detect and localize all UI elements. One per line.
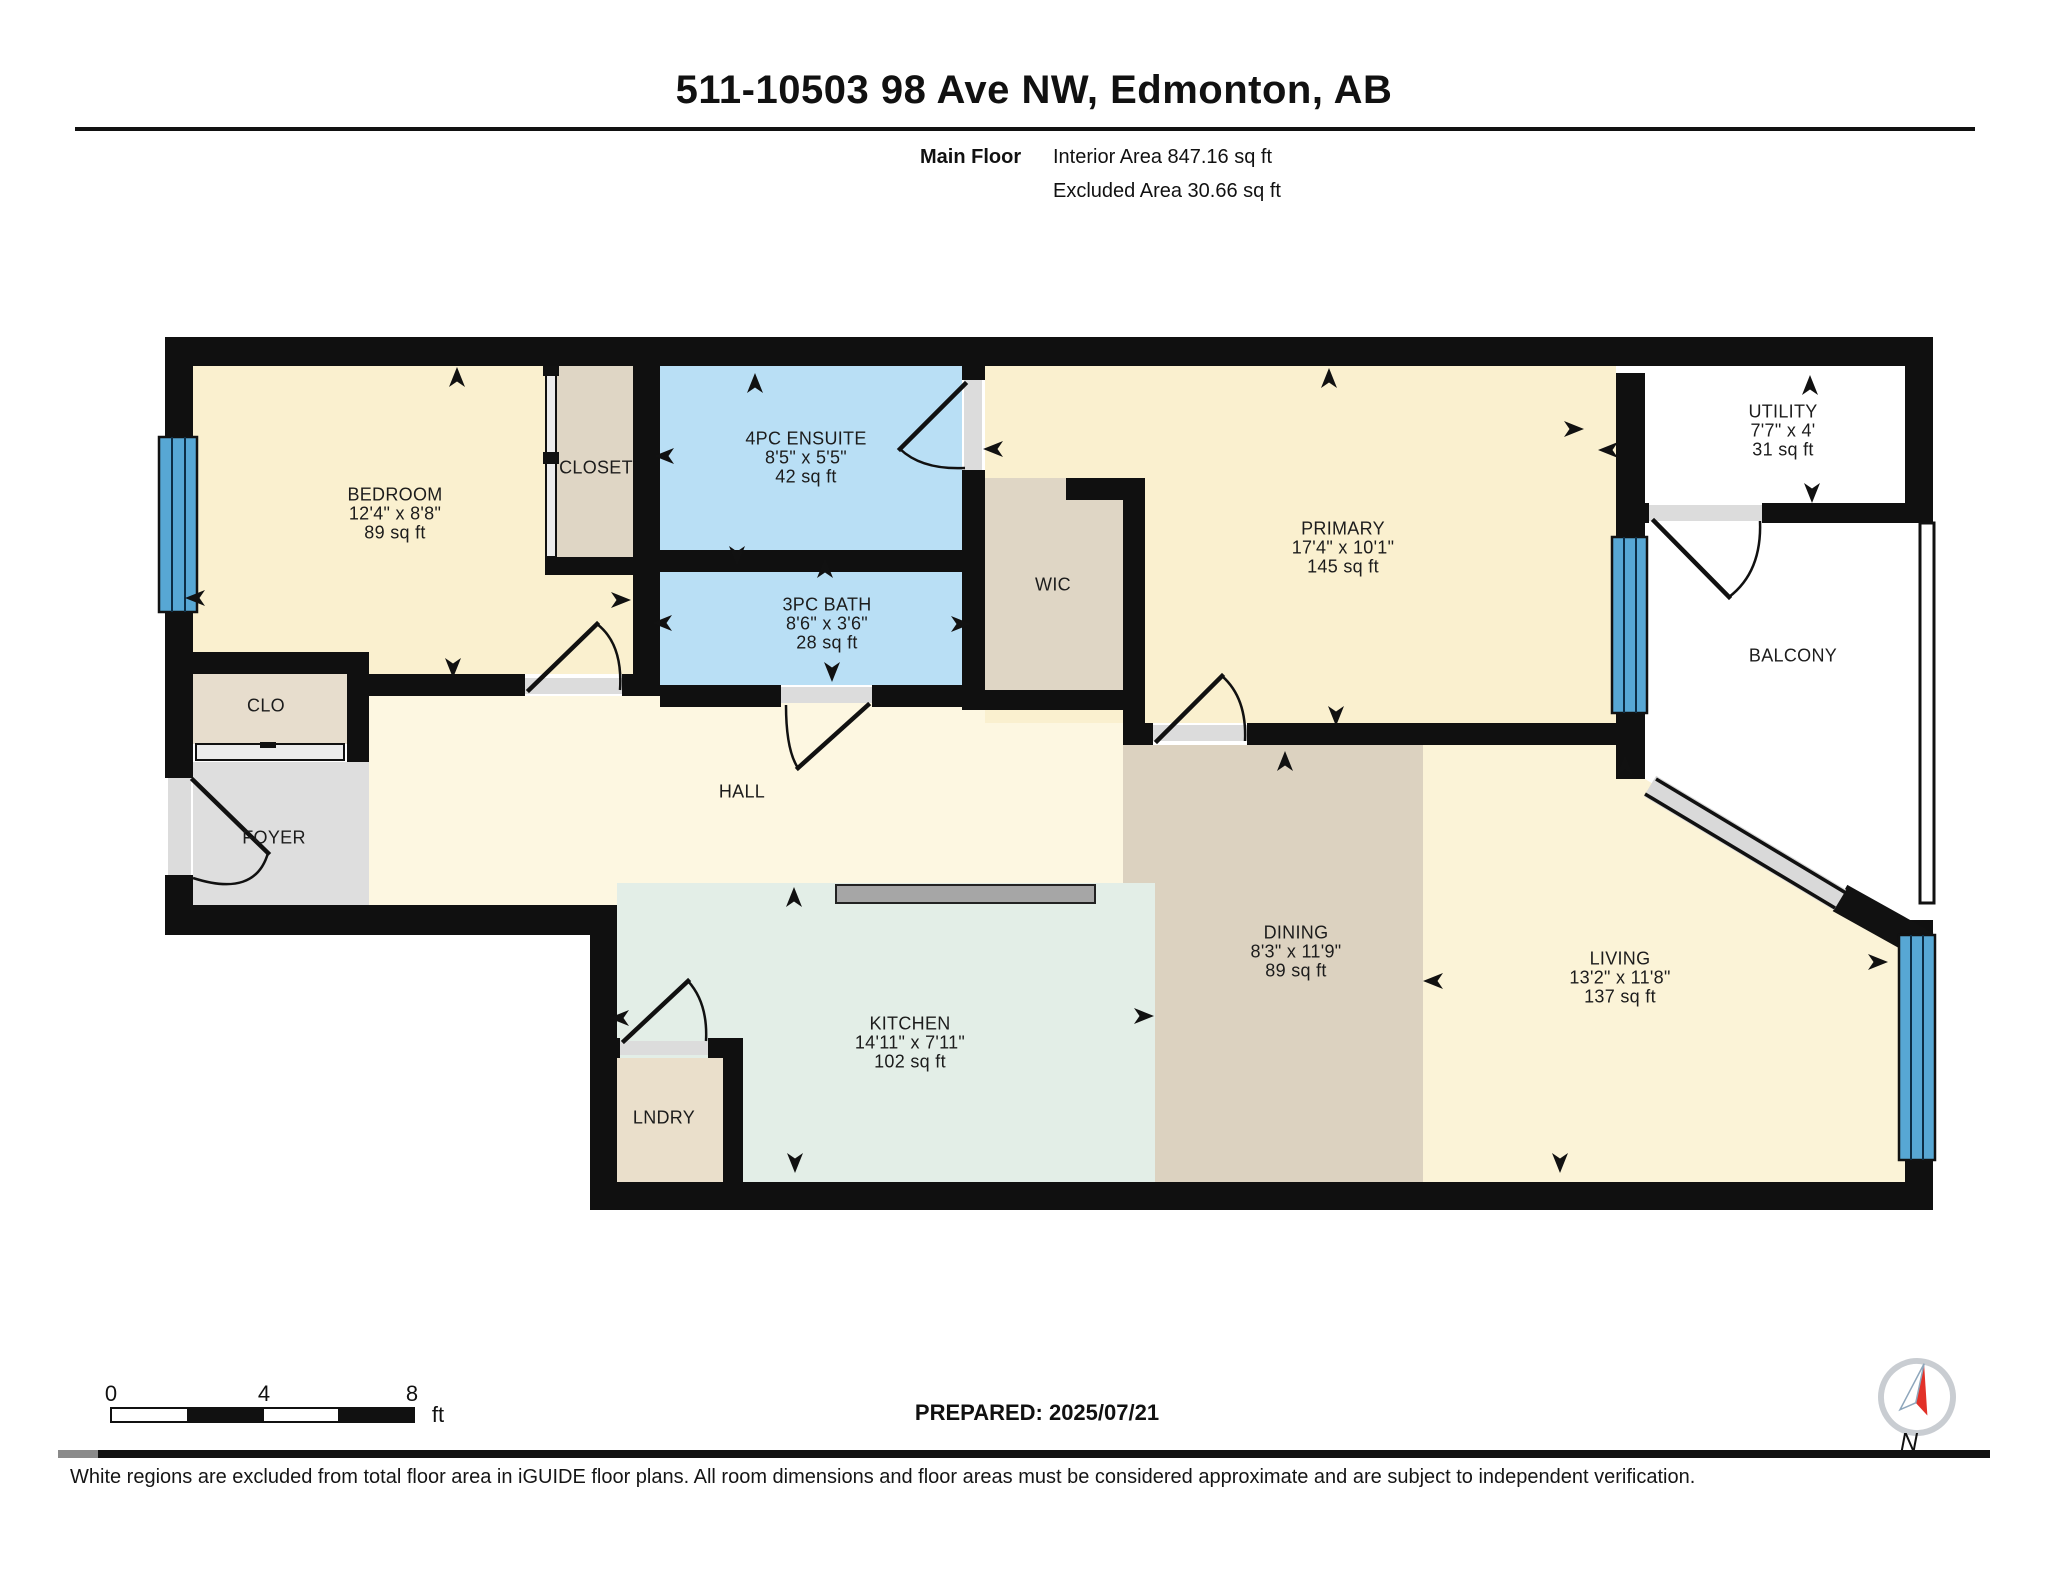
room-label-living: LIVING13'2" x 11'8"137 sq ft [1569,950,1670,1007]
scale-unit: ft [432,1402,444,1428]
room-label-hall: HALL [719,783,765,802]
living-window [1899,935,1935,1160]
room-label-primary: PRIMARY17'4" x 10'1"145 sq ft [1292,520,1395,577]
kitchen-island [836,885,1095,903]
scale-bar [111,1408,414,1422]
camera-arrow-icon [1804,483,1820,503]
footer-rule [98,1450,1990,1458]
bedroom-window [159,437,197,612]
room-label-clo: CLO [247,697,285,716]
room-label-wic: WIC [1035,576,1071,595]
floor-plan-drawing [0,0,2048,1583]
room-label-lndry: LNDRY [633,1109,695,1128]
floor-plan-page: 511-10503 98 Ave NW, Edmonton, AB Main F… [0,0,2048,1583]
prepared-date-label: PREPARED: 2025/07/21 [915,1400,1159,1426]
camera-arrow-icon [1802,375,1818,395]
hall-floor [369,696,1130,915]
room-label-utility: UTILITY7'7" x 4'31 sq ft [1748,403,1817,460]
compass-north-label: N [1900,1429,1918,1458]
scale-tick-4: 4 [258,1381,270,1407]
compass-icon [1874,1354,1959,1439]
scale-tick-0: 0 [105,1381,117,1407]
room-label-closet: CLOSET [559,459,633,478]
room-label-dining: DINING8'3" x 11'9"89 sq ft [1251,924,1342,981]
room-label-ensuite: 4PC ENSUITE8'5" x 5'5"42 sq ft [745,430,866,487]
room-fills [193,364,1905,1182]
room-label-foyer: FOYER [242,829,306,848]
room-label-bath: 3PC BATH8'6" x 3'6"28 sq ft [782,596,871,653]
primary-window [1612,537,1647,713]
room-label-balcony: BALCONY [1749,647,1837,666]
balcony-railing [1920,523,1934,903]
scale-tick-8: 8 [406,1381,418,1407]
footer-disclaimer: White regions are excluded from total fl… [70,1466,1980,1489]
room-label-bedroom: BEDROOM12'4" x 8'8"89 sq ft [347,486,442,543]
room-label-kitchen: KITCHEN14'11" x 7'11"102 sq ft [855,1015,965,1072]
footer-rule-stub [58,1450,98,1458]
